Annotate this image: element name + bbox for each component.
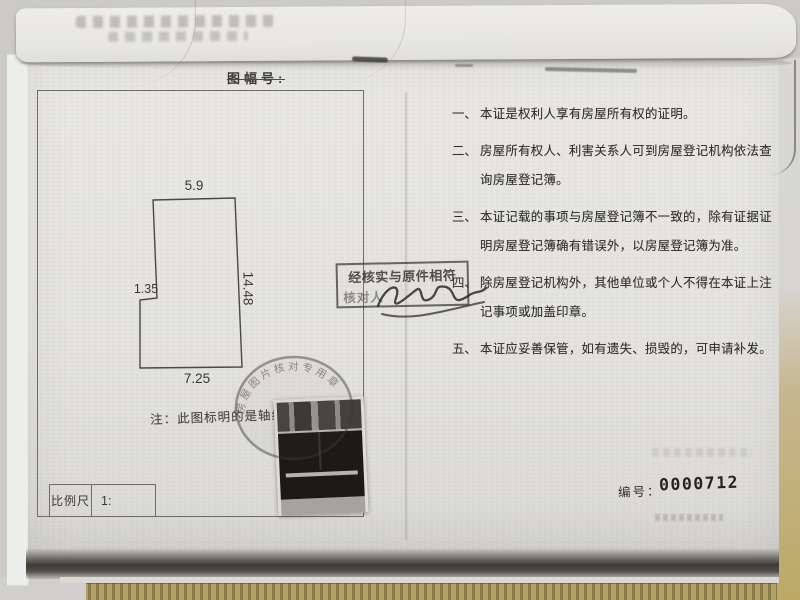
note-2-line-1: 房屋所有权人、利害关系人可到房屋登记机构依法查 — [480, 137, 778, 167]
page-bottom-edge — [60, 577, 779, 583]
note-5: 五、 本证应妥善保管，如有遗失、损毁的，可申请补发。 — [452, 335, 778, 365]
dimension-step: 1.35 — [126, 282, 166, 296]
photographed-certificate-scene: 图幅号: 5.9 14.48 1.35 7.25 注：此图标明的是轴线尺寸 比例… — [0, 0, 800, 600]
note-2: 二、 房屋所有权人、利害关系人可到房屋登记机构依法查 询房屋登记簿。 — [452, 137, 778, 196]
house-photo-light-bar — [286, 470, 358, 477]
note-4-line-2: 记事项或加盖印章。 — [480, 298, 778, 328]
scale-table: 比例尺 1: — [49, 484, 156, 517]
bleed-through-text-mid — [652, 448, 752, 457]
scale-value: 1: — [92, 485, 155, 516]
round-stamp: 房屋图片核对专用章 — [231, 352, 357, 464]
certificate-notes: 一、 本证是权利人享有房屋所有权的证明。 二、 房屋所有权人、利害关系人可到房屋… — [452, 100, 778, 371]
note-3: 三、 本证记载的事项与房屋登记簿不一致的，除有证据证 明房屋登记簿确有错误外，以… — [452, 203, 778, 262]
note-3-line-2: 明房屋登记簿确有错误外，以房屋登记簿为准。 — [480, 232, 778, 262]
serial-number-label: 编号： — [618, 480, 662, 500]
ink-smudge — [455, 64, 473, 67]
note-4: 四、 除房屋登记机构外，其他单位或个人不得在本证上注 记事项或加盖印章。 — [452, 269, 778, 328]
dimension-right: 14.48 — [241, 249, 256, 329]
note-1: 一、 本证是权利人享有房屋所有权的证明。 — [452, 100, 778, 130]
note-1-number: 一、 — [452, 100, 480, 130]
dimension-bottom: 7.25 — [177, 371, 217, 386]
bleed-through-text-row — [108, 31, 248, 42]
note-2-number: 二、 — [452, 137, 480, 196]
note-1-line-1: 本证是权利人享有房屋所有权的证明。 — [480, 100, 778, 130]
note-3-line-1: 本证记载的事项与房屋登记簿不一致的，除有证据证 — [480, 203, 778, 233]
note-5-line-1: 本证应妥善保管，如有遗失、损毁的，可申请补发。 — [480, 335, 778, 365]
bleed-through-text-row — [76, 15, 276, 28]
page-bottom-fold-shadow — [26, 548, 779, 579]
note-2-line-2: 询房屋登记簿。 — [480, 166, 778, 196]
table-edge-strip — [0, 583, 800, 600]
note-4-line-1: 除房屋登记机构外，其他单位或个人不得在本证上注 — [480, 269, 778, 299]
scale-label: 比例尺 — [50, 485, 92, 516]
serial-number-value: 0000712 — [659, 473, 740, 495]
note-3-number: 三、 — [452, 203, 480, 262]
dimension-top: 5.9 — [174, 178, 214, 193]
handwritten-signature — [372, 266, 497, 328]
curled-previous-page — [16, 4, 796, 63]
note-5-number: 五、 — [452, 335, 480, 365]
bleed-through-text-bottom — [655, 514, 723, 521]
